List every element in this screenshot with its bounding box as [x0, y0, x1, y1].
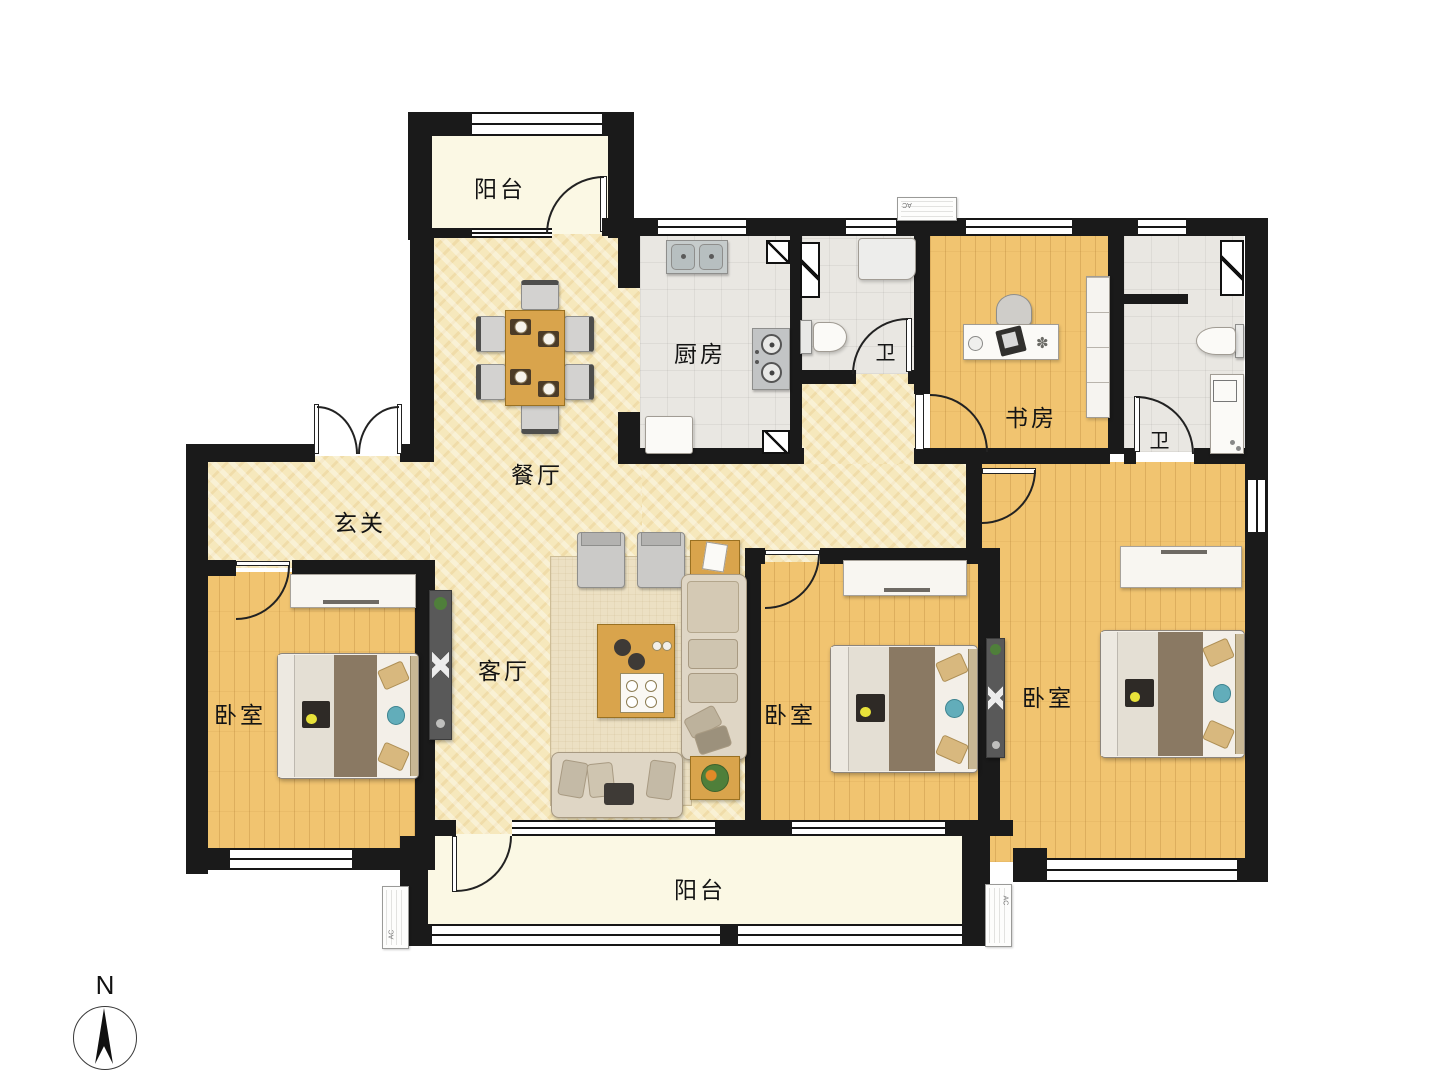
sofa-pillow: [688, 673, 738, 703]
wardrobe: [1120, 546, 1242, 588]
plate: [542, 333, 555, 346]
flue-duct: [766, 240, 790, 264]
wall-segment: [400, 444, 434, 462]
entry-door-arc: [317, 406, 358, 454]
window: [792, 820, 945, 836]
washing-machine: [858, 238, 916, 280]
armchair-back: [581, 532, 621, 546]
wall-segment: [1124, 294, 1188, 304]
bed: [1100, 630, 1245, 758]
room-label-entry: 玄关: [334, 504, 386, 538]
toilet-tank: [800, 320, 812, 354]
stove-burner: [761, 334, 782, 355]
decor: [436, 719, 445, 728]
dining-chair: [521, 280, 559, 310]
desk-cup: [968, 336, 983, 351]
room-label-living: 客厅: [478, 652, 530, 686]
bed-tray: [856, 694, 885, 722]
vanity-faucet: [1230, 440, 1235, 445]
place-setting: [510, 369, 531, 385]
window: [472, 112, 602, 136]
bed-tray: [302, 701, 330, 728]
cup: [652, 641, 662, 651]
wardrobe-handle: [323, 600, 379, 604]
wall-segment: [1108, 236, 1124, 454]
window: [1047, 858, 1237, 882]
dining-chair: [476, 364, 506, 400]
window: [512, 820, 715, 836]
sofa-pillow: [645, 759, 676, 800]
bed-pillow: [377, 741, 410, 771]
sofa-pillow: [557, 759, 589, 799]
book: [702, 541, 728, 572]
dining-chair: [564, 316, 594, 352]
tv-cabinet-living: [429, 590, 452, 740]
window: [230, 848, 352, 870]
bed-headboard: [968, 649, 977, 770]
wall-segment: [914, 236, 930, 394]
stove-knob: [755, 360, 759, 364]
bed-footboard: [1101, 632, 1118, 755]
wall-segment: [186, 848, 230, 870]
wardrobe: [843, 560, 967, 596]
ac-label: AC: [1001, 896, 1008, 906]
ac-unit: AC: [985, 884, 1012, 947]
window: [966, 218, 1072, 236]
desk-flower: ✽: [1036, 336, 1052, 352]
entry-door-arc: [358, 406, 399, 454]
wall-segment: [802, 370, 856, 384]
floor-entry: [205, 456, 435, 568]
room-label-study: 书房: [1005, 399, 1057, 433]
armchair-back: [641, 532, 681, 546]
tv-screen: [988, 672, 1002, 724]
bed-pillow: [377, 661, 410, 691]
wall-segment: [408, 112, 432, 240]
wall-segment: [745, 548, 761, 836]
room-label-dining: 餐厅: [511, 456, 563, 490]
wardrobe-handle: [884, 588, 930, 592]
dining-table: [505, 310, 565, 406]
dining-chair: [521, 404, 559, 434]
place-setting: [538, 331, 559, 347]
compass-north-label: N: [91, 970, 119, 1001]
room-label-bedroom-left: 卧室: [214, 696, 266, 730]
bed-footboard: [278, 655, 295, 777]
coffee-table: [597, 624, 675, 718]
shower-panel: [1220, 240, 1244, 296]
room-label-bath2: 卫: [1150, 425, 1171, 454]
wall-segment: [1245, 218, 1268, 882]
bed-footboard: [831, 647, 849, 770]
toilet-bowl: [1196, 327, 1236, 355]
toilet-tank: [1235, 324, 1244, 358]
wall-segment: [746, 218, 846, 236]
ac-label: AC: [388, 930, 395, 940]
wardrobe: [290, 574, 416, 608]
wall-segment: [186, 560, 236, 576]
place-setting: [510, 319, 531, 335]
tv-screen: [432, 632, 450, 697]
tea-tray: [620, 673, 664, 713]
sofa-tray: [604, 783, 634, 805]
bed-tray: [1125, 679, 1154, 707]
bed-pillow: [934, 735, 968, 766]
sofa-l-shaped: [681, 574, 747, 760]
bed-blanket: [889, 647, 934, 770]
stove-burner: [761, 362, 782, 383]
round-pillow: [387, 706, 405, 725]
bed-blanket: [334, 655, 377, 777]
wall-segment: [945, 820, 1013, 836]
wall-segment: [1237, 858, 1268, 882]
room-label-kitchen: 厨房: [674, 335, 726, 369]
dining-chair: [476, 316, 506, 352]
wall-segment: [408, 228, 472, 238]
window: [658, 218, 746, 236]
room-label-bedroom-middle: 卧室: [764, 696, 816, 730]
door-leaf: [915, 394, 924, 450]
round-pillow: [1213, 684, 1232, 703]
plate: [514, 371, 527, 384]
stove-knob: [755, 350, 759, 354]
plant-decor: [434, 597, 447, 610]
wall-segment: [1013, 848, 1047, 882]
room-label-bath1: 卫: [876, 337, 897, 366]
window: [1138, 218, 1186, 236]
floor-nook: [796, 372, 918, 464]
wardrobe-handle: [1161, 550, 1207, 554]
cup: [645, 696, 657, 708]
ac-unit: AC: [897, 197, 957, 221]
wall-segment: [720, 924, 738, 946]
window: [472, 228, 552, 238]
floor-plan: ✽: [0, 0, 1440, 1080]
ac-unit: AC: [382, 886, 409, 949]
room-label-balcony-top: 阳台: [474, 170, 526, 204]
plate: [542, 383, 555, 396]
kettle: [614, 639, 631, 656]
wall-segment: [415, 820, 456, 836]
cup: [626, 696, 638, 708]
wall-segment: [1072, 218, 1138, 236]
ac-label: AC: [902, 201, 912, 208]
plant-decor: [990, 644, 1001, 655]
vanity-basin: [1213, 380, 1237, 402]
cup: [626, 680, 638, 692]
dining-chair: [564, 364, 594, 400]
window: [738, 924, 964, 946]
wall-segment: [715, 820, 792, 836]
wall-segment: [410, 238, 434, 462]
vanity-faucet: [1236, 446, 1241, 451]
wall-segment: [602, 218, 658, 236]
plate: [514, 321, 527, 334]
place-setting: [538, 381, 559, 397]
bed-blanket: [1158, 632, 1202, 755]
decor: [992, 741, 1000, 749]
cup: [645, 680, 657, 692]
kettle: [628, 653, 645, 670]
tv-cabinet-master: [986, 638, 1005, 758]
room-label-bedroom-right: 卧室: [1022, 679, 1074, 713]
sink-drain: [681, 254, 686, 259]
wall-segment: [618, 412, 640, 452]
wall-segment: [186, 444, 208, 874]
bookshelf: [1086, 276, 1110, 418]
bed: [277, 653, 419, 779]
sink-drain: [709, 254, 714, 259]
bed-headboard: [410, 656, 418, 775]
window: [1246, 480, 1267, 532]
loveseat-sofa: [551, 752, 683, 818]
bed-pillow: [934, 653, 968, 684]
desk-chair: [996, 294, 1032, 326]
window: [846, 218, 896, 236]
bed-pillow: [1202, 720, 1236, 751]
toilet-bowl: [813, 322, 847, 352]
cup: [662, 641, 672, 651]
bed: [830, 645, 978, 773]
wall-segment: [618, 236, 640, 288]
shower-panel: [800, 242, 820, 298]
window: [432, 924, 720, 946]
sofa-pillow: [688, 639, 738, 669]
room-label-balcony-bottom: 阳台: [674, 871, 726, 905]
round-pillow: [945, 699, 964, 718]
fridge: [645, 416, 693, 454]
potted-plant: [701, 764, 729, 792]
bed-headboard: [1235, 634, 1244, 755]
flue-duct: [762, 430, 790, 454]
bed-pillow: [1202, 638, 1236, 669]
sofa-chaise: [687, 581, 739, 633]
